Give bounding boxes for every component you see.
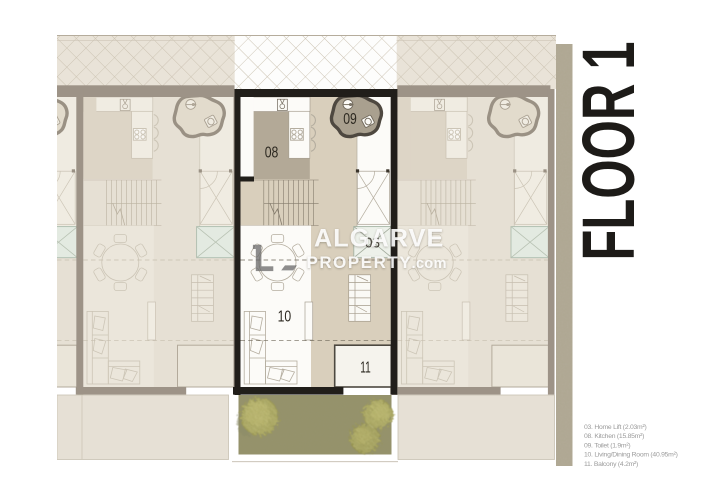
svg-text:PROPERTY: PROPERTY [307,253,413,272]
svg-text:11: 11 [360,360,371,377]
svg-text:09: 09 [343,111,357,128]
svg-text:08. Kitchen (15.85m²): 08. Kitchen (15.85m²) [584,433,644,440]
svg-text:11. Balcony (4.2m²): 11. Balcony (4.2m²) [584,461,638,468]
svg-text:10. Living/Dining Room (40.95m: 10. Living/Dining Room (40.95m²) [584,452,678,459]
svg-text:03. Home Lift (2.03m²): 03. Home Lift (2.03m²) [584,424,647,431]
svg-text:10: 10 [278,309,292,326]
svg-text:FLOOR 1: FLOOR 1 [567,42,650,261]
svg-text:ALGARVE: ALGARVE [314,225,444,253]
svg-text:.com: .com [412,256,447,272]
svg-text:08: 08 [265,144,279,161]
svg-text:09. Toilet (1.9m²): 09. Toilet (1.9m²) [584,442,630,449]
